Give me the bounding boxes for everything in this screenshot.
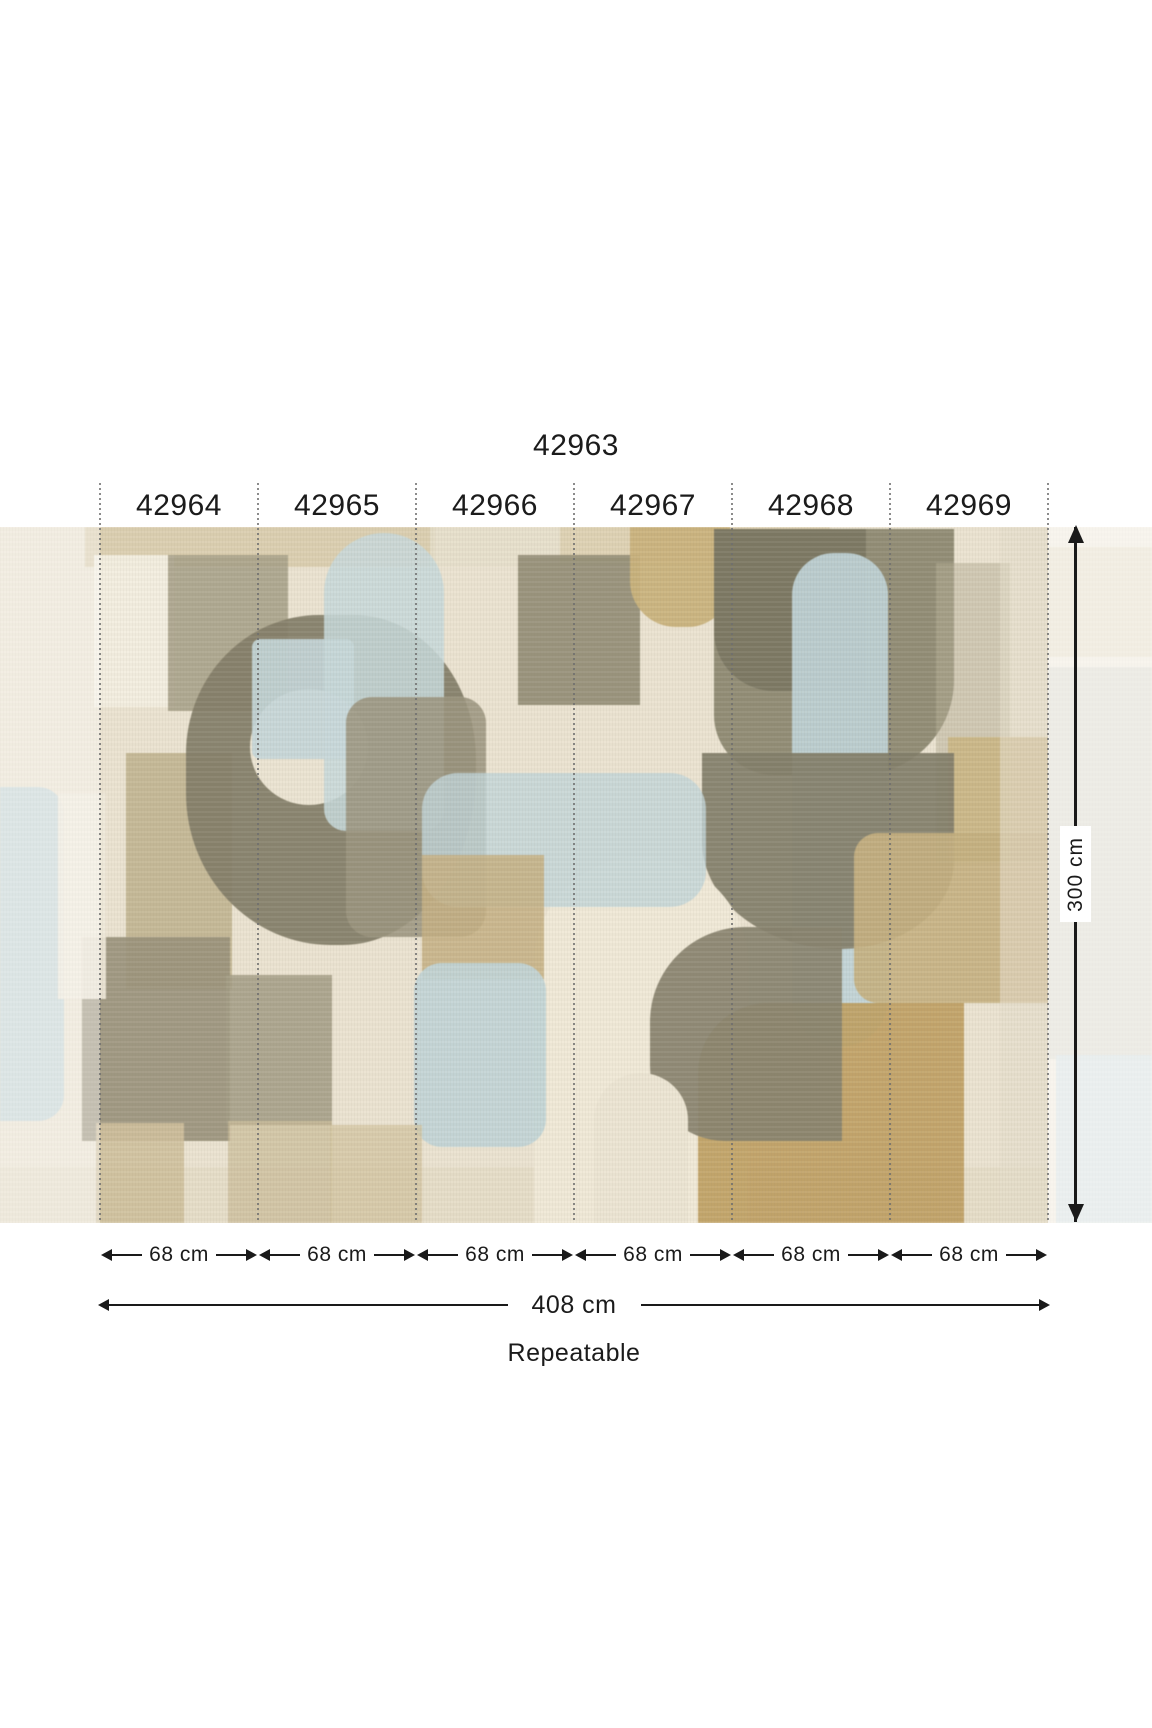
down-arrow-icon	[1068, 1204, 1084, 1222]
panel-width-dimension-1: 68 cm	[100, 1240, 258, 1270]
left-arrow-icon	[735, 1254, 774, 1256]
panel-divider-line-1	[99, 483, 101, 1223]
left-arrow-icon	[261, 1254, 300, 1256]
right-arrow-icon	[690, 1254, 729, 1256]
right-arrow-icon	[216, 1254, 255, 1256]
panel-width-dimension-2: 68 cm	[258, 1240, 416, 1270]
panel-divider-line-4	[573, 483, 575, 1223]
panel-label-2: 42965	[258, 486, 416, 527]
page-title: 42963	[0, 424, 1152, 468]
mural-shape-layer	[0, 527, 1152, 1223]
right-arrow-icon	[641, 1304, 1049, 1306]
wallpaper-panel-diagram: 42963 42964 42965 42966 42967 42968 4296…	[0, 0, 1152, 1728]
panel-label-5: 42968	[732, 486, 890, 527]
panel-divider-line-5	[731, 483, 733, 1223]
right-arrow-icon	[374, 1254, 413, 1256]
left-arrow-icon	[419, 1254, 458, 1256]
panel-divider-line-3	[415, 483, 417, 1223]
left-arrow-icon	[103, 1254, 142, 1256]
right-arrow-icon	[532, 1254, 571, 1256]
panel-width-dimension-4: 68 cm	[574, 1240, 732, 1270]
left-arrow-icon	[100, 1304, 508, 1306]
panel-divider-line-2	[257, 483, 259, 1223]
panel-width-dimension-6: 68 cm	[890, 1240, 1048, 1270]
total-width-dimension: 408 cm	[100, 1291, 1048, 1319]
right-arrow-icon	[848, 1254, 887, 1256]
up-arrow-icon	[1068, 525, 1084, 543]
repeat-fade-left	[0, 527, 100, 1223]
height-dimension-label: 300 cm	[1060, 826, 1091, 922]
panel-label-6: 42969	[890, 486, 1048, 527]
mural-artwork	[0, 527, 1152, 1223]
right-arrow-icon	[1006, 1254, 1045, 1256]
panel-width-dimension-3: 68 cm	[416, 1240, 574, 1270]
panel-divider-line-7	[1047, 483, 1049, 1223]
panel-label-1: 42964	[100, 486, 258, 527]
panel-label-4: 42967	[574, 486, 732, 527]
panel-divider-line-6	[889, 483, 891, 1223]
panel-label-3: 42966	[416, 486, 574, 527]
panel-width-dimension-5: 68 cm	[732, 1240, 890, 1270]
repeatable-note: Repeatable	[100, 1338, 1048, 1372]
left-arrow-icon	[577, 1254, 616, 1256]
left-arrow-icon	[893, 1254, 932, 1256]
